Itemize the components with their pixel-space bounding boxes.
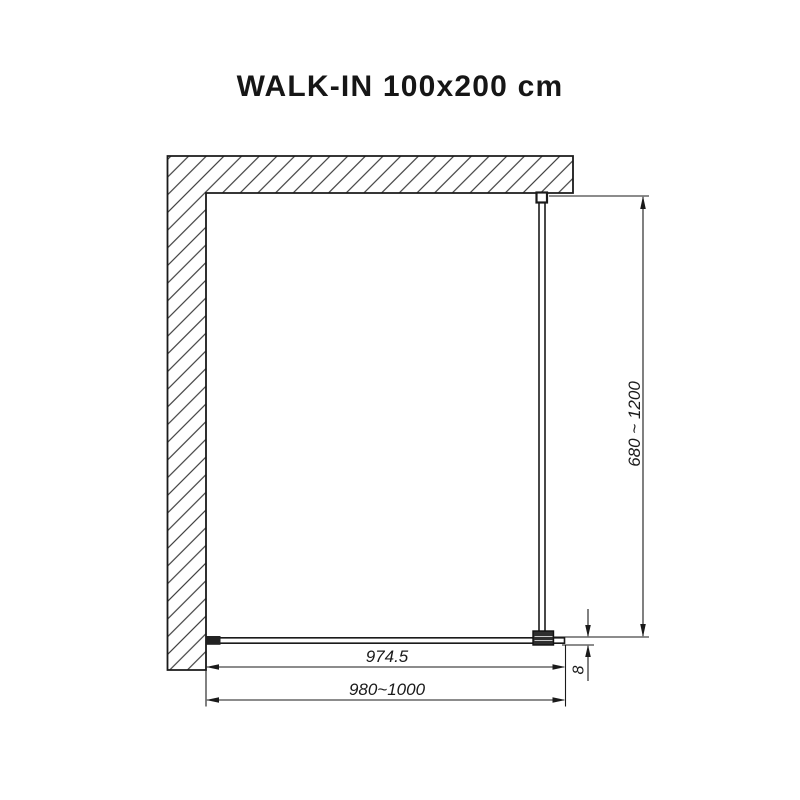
glass-panel [206,636,565,645]
drawing-page: WALK-IN 100x200 cm [0,0,800,800]
dimension-glass-thickness: 8 [562,609,594,681]
arrowhead-up [640,196,646,209]
wall-section [168,156,574,670]
arrowhead-right [553,664,566,670]
dimension-label-glass-width: 974.5 [366,647,409,666]
wall-profile [207,636,221,645]
support-bar [533,193,554,646]
dimension-installation-width: 980~1000 [206,680,566,703]
wall-hatch-area [168,156,574,670]
arrowhead-right [553,697,566,703]
arrowhead-up [585,645,591,657]
arrowhead-down [640,624,646,637]
glass-clamp-bracket [533,631,554,645]
technical-drawing: 680 ~ 1200 974.5 980~1000 8 [0,0,800,800]
wall-mount-bracket [537,193,548,203]
dimension-label-bar-length: 680 ~ 1200 [625,381,644,467]
arrowhead-left [206,664,219,670]
arrowhead-left [206,697,219,703]
dimension-label-installation-width: 980~1000 [349,680,426,699]
arrowhead-down [585,625,591,637]
dimension-support-bar-length: 680 ~ 1200 [549,196,649,637]
dimension-label-glass-thickness: 8 [571,665,588,674]
